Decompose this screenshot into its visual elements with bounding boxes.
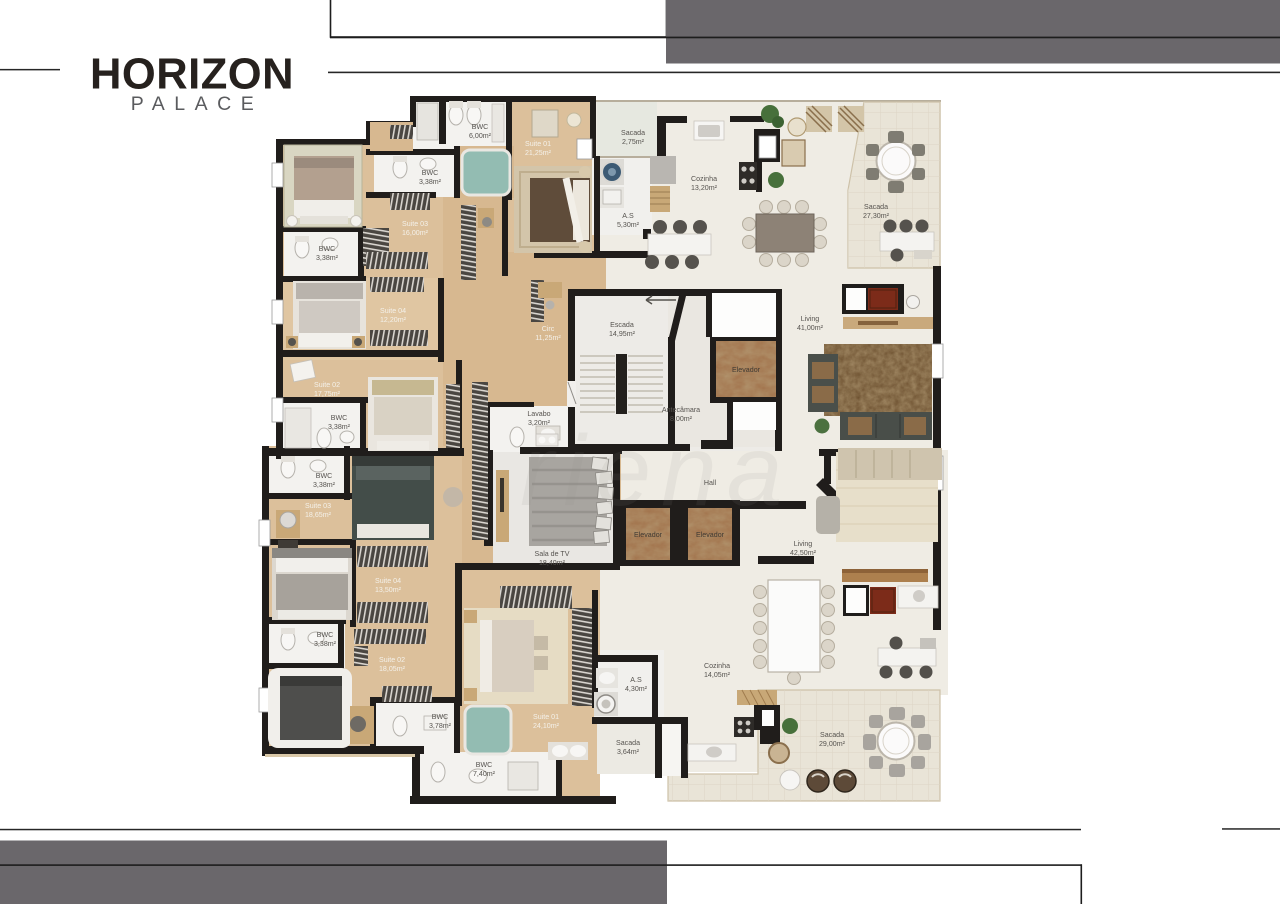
svg-text:Sacada: Sacada [616,739,640,747]
svg-text:Suite 04: Suite 04 [380,307,406,315]
svg-text:18,05m²: 18,05m² [379,665,406,673]
svg-text:BWC: BWC [476,761,493,769]
svg-text:HORIZON: HORIZON [90,51,294,99]
svg-text:3,38m²: 3,38m² [328,423,351,431]
svg-text:21,25m²: 21,25m² [525,149,552,157]
svg-text:4,30m²: 4,30m² [625,685,648,693]
svg-text:Escada: Escada [610,321,634,329]
svg-text:11,25m²: 11,25m² [535,334,561,342]
svg-text:Elevador: Elevador [696,531,725,539]
svg-text:Suite 03: Suite 03 [402,220,428,228]
svg-text:Sala de TV: Sala de TV [535,550,570,558]
svg-text:12,20m²: 12,20m² [380,316,407,324]
svg-text:27,30m²: 27,30m² [863,212,890,220]
svg-text:2,75m²: 2,75m² [622,138,645,146]
svg-text:18,40m²: 18,40m² [539,559,566,567]
svg-text:3,38m²: 3,38m² [314,640,337,648]
svg-text:13,20m²: 13,20m² [691,184,718,192]
svg-text:BWC: BWC [472,123,489,131]
svg-text:3,20m²: 3,20m² [528,419,551,427]
svg-text:BWC: BWC [317,631,334,639]
svg-text:16,00m²: 16,00m² [402,229,429,237]
svg-text:14,05m²: 14,05m² [704,671,731,679]
svg-text:Living: Living [794,540,813,548]
svg-text:13,50m²: 13,50m² [375,586,402,594]
svg-text:Cozinha: Cozinha [691,175,717,183]
svg-text:3,78m²: 3,78m² [429,722,452,730]
svg-text:Suite 04: Suite 04 [375,577,401,585]
svg-text:Suite 01: Suite 01 [533,713,559,721]
svg-text:A.S: A.S [630,676,642,684]
svg-text:BWC: BWC [331,414,348,422]
svg-text:BWC: BWC [319,245,336,253]
svg-text:14,95m²: 14,95m² [609,330,636,338]
svg-text:42,50m²: 42,50m² [790,549,817,557]
svg-text:5,30m²: 5,30m² [617,221,640,229]
svg-text:41,00m²: 41,00m² [797,324,824,332]
svg-text:3,64m²: 3,64m² [617,748,640,756]
svg-text:3,38m²: 3,38m² [419,178,442,186]
svg-text:7,40m²: 7,40m² [473,770,496,778]
svg-text:Cozinha: Cozinha [704,662,730,670]
svg-text:Suite 03: Suite 03 [305,502,331,510]
svg-text:Antecâmara: Antecâmara [662,406,700,414]
svg-text:Sacada: Sacada [864,203,888,211]
svg-text:Suite 02: Suite 02 [314,381,340,389]
svg-text:Circ: Circ [542,325,555,333]
svg-text:24,10m²: 24,10m² [533,722,560,730]
svg-text:riena: riena [520,415,792,527]
svg-text:Lavabo: Lavabo [527,410,550,418]
svg-text:Sacada: Sacada [621,129,645,137]
svg-text:Elevador: Elevador [732,366,761,374]
svg-text:PALACE: PALACE [131,93,264,115]
svg-text:8,00m²: 8,00m² [670,415,693,423]
svg-text:BWC: BWC [432,713,449,721]
svg-text:3,38m²: 3,38m² [316,254,339,262]
svg-text:18,65m²: 18,65m² [305,511,332,519]
svg-text:BWC: BWC [422,169,439,177]
svg-text:Suite 02: Suite 02 [379,656,405,664]
svg-text:Suite 01: Suite 01 [525,140,551,148]
svg-text:29,00m²: 29,00m² [819,740,846,748]
svg-text:Hall: Hall [704,479,717,487]
svg-text:BWC: BWC [316,472,333,480]
svg-text:3,38m²: 3,38m² [313,481,336,489]
svg-text:A.S: A.S [622,212,634,220]
svg-text:17,75m²: 17,75m² [314,390,341,398]
svg-text:Sacada: Sacada [820,731,844,739]
svg-text:Living: Living [801,315,820,323]
svg-text:6,00m²: 6,00m² [469,132,492,140]
svg-text:Elevador: Elevador [634,531,663,539]
